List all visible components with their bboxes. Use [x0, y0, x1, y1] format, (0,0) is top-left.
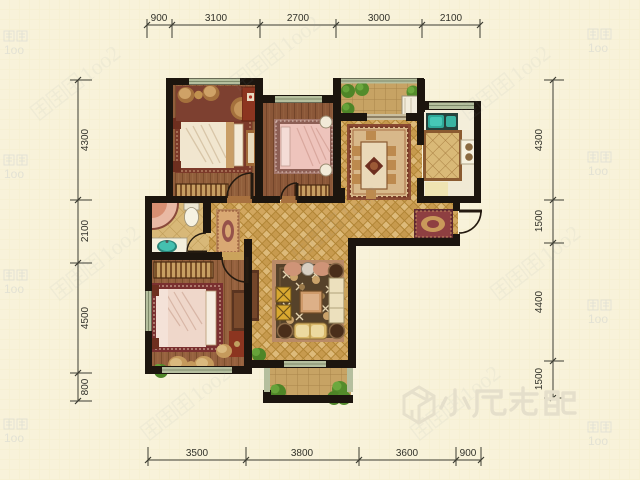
svg-text:1oo: 1oo — [4, 167, 24, 181]
svg-text:4300: 4300 — [534, 128, 545, 151]
svg-text:4500: 4500 — [80, 306, 91, 329]
svg-text:1oo: 1oo — [588, 312, 608, 326]
svg-text:800: 800 — [80, 378, 91, 395]
svg-text:900: 900 — [460, 448, 477, 459]
svg-text:4300: 4300 — [80, 128, 91, 151]
svg-text:4400: 4400 — [534, 290, 545, 313]
svg-text:1oo: 1oo — [588, 41, 608, 55]
svg-text:3100: 3100 — [205, 13, 228, 24]
svg-text:1oo: 1oo — [588, 434, 608, 448]
svg-text:3000: 3000 — [368, 13, 391, 24]
svg-text:1500: 1500 — [534, 209, 545, 232]
svg-text:2100: 2100 — [80, 219, 91, 242]
svg-text:1500: 1500 — [534, 367, 545, 390]
svg-text:2100: 2100 — [440, 13, 463, 24]
svg-text:3500: 3500 — [186, 448, 209, 459]
svg-text:900: 900 — [151, 13, 168, 24]
svg-text:3600: 3600 — [396, 448, 419, 459]
svg-text:1oo: 1oo — [4, 282, 24, 296]
svg-text:1oo: 1oo — [588, 164, 608, 178]
svg-text:1oo: 1oo — [4, 43, 24, 57]
svg-text:3800: 3800 — [291, 448, 314, 459]
svg-text:1oo: 1oo — [4, 431, 24, 445]
